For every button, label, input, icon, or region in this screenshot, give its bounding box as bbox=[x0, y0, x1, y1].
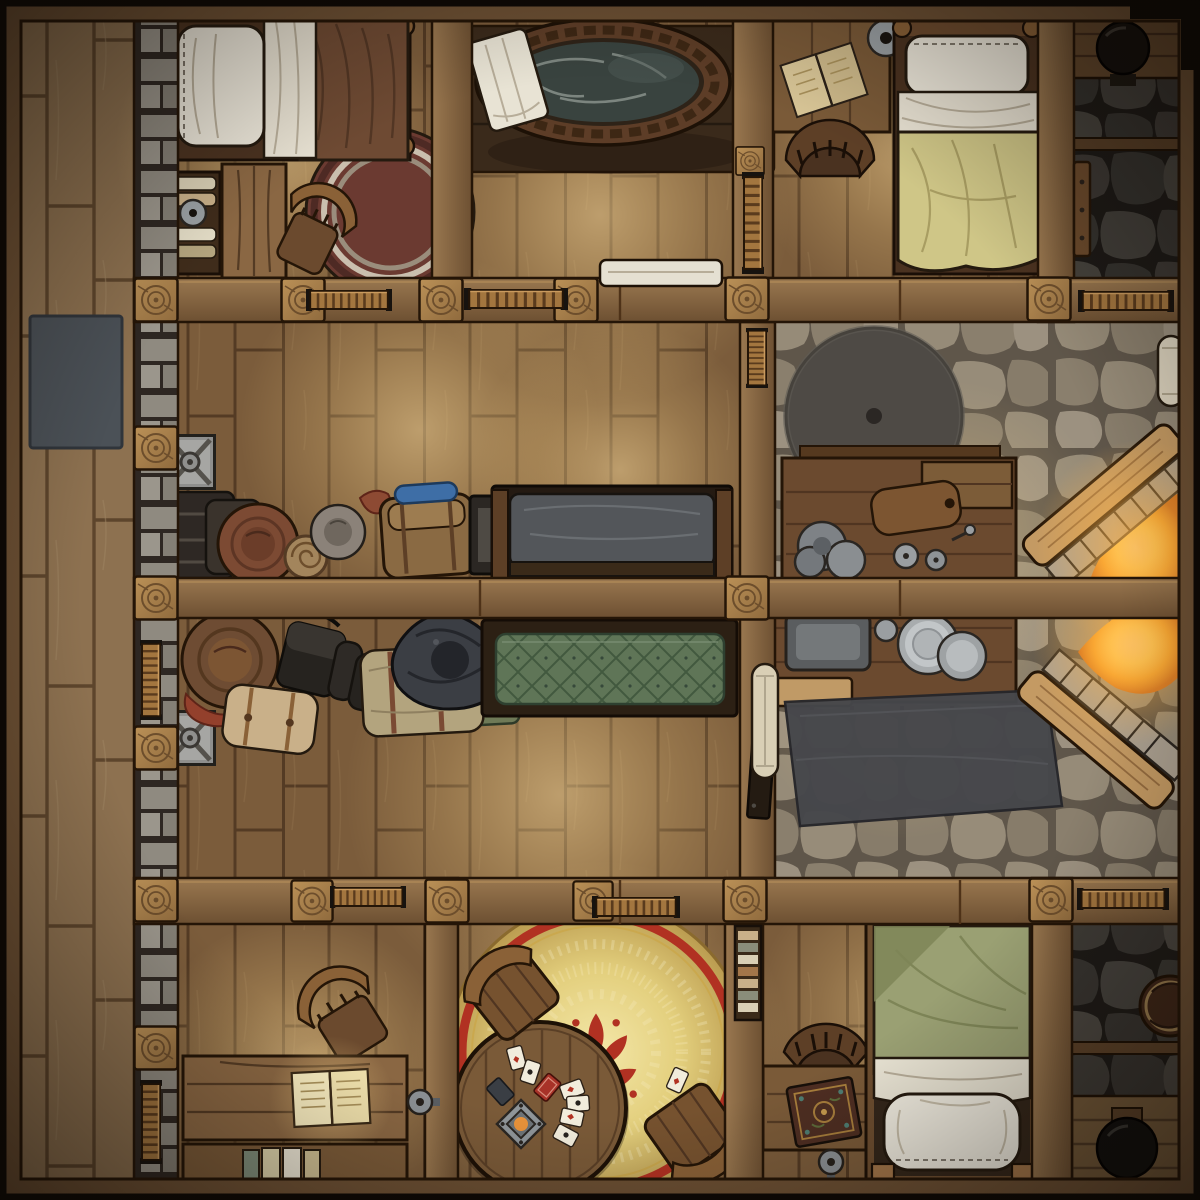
battle-map bbox=[0, 0, 1200, 1200]
battle-map-stage bbox=[0, 0, 1200, 1200]
vignette-overlay bbox=[0, 0, 1200, 1200]
